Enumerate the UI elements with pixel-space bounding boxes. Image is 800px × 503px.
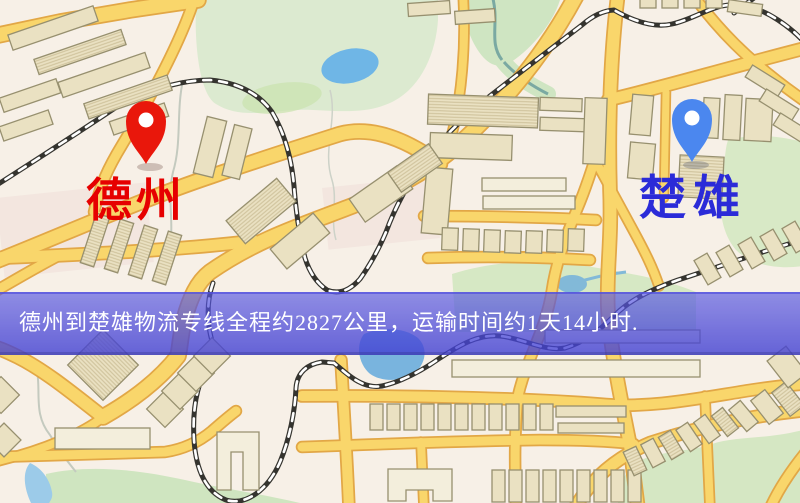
map-building <box>505 231 522 254</box>
map-building <box>408 1 451 17</box>
map-building <box>540 117 586 132</box>
map-building <box>489 404 502 430</box>
map-building <box>523 404 536 430</box>
map-building <box>463 229 480 252</box>
map-building <box>547 230 564 253</box>
map-building <box>662 0 678 8</box>
map-building <box>706 0 722 8</box>
map-canvas <box>0 0 800 503</box>
map-building <box>640 0 656 8</box>
map-building <box>421 404 434 430</box>
map-building <box>483 196 575 209</box>
map-building <box>577 470 590 502</box>
map-building <box>526 470 539 502</box>
map-building <box>684 0 700 8</box>
map-building <box>472 404 485 430</box>
map-building <box>723 95 742 141</box>
map-building <box>568 229 585 252</box>
banner-text: 德州到楚雄物流专线全程约2827公里，运输时间约1天14小时. <box>0 294 800 351</box>
map-building <box>455 404 468 430</box>
map-building <box>540 404 553 430</box>
map-building <box>558 423 624 433</box>
map-building <box>484 230 501 253</box>
map-building <box>526 231 543 254</box>
map-building <box>455 9 496 25</box>
map-building <box>438 404 451 430</box>
map-building <box>583 98 607 165</box>
map-building <box>370 404 383 430</box>
map-building <box>452 360 700 377</box>
map-building <box>556 406 626 417</box>
map-building <box>506 404 519 430</box>
map-building <box>482 178 566 191</box>
map-building <box>428 94 539 128</box>
map-image: 德州 楚雄 德州到楚雄物流专线全程约2827公里，运输时间约1天14小时. <box>0 0 800 503</box>
map-building <box>509 470 522 502</box>
map-building <box>442 228 459 251</box>
map-building <box>404 404 417 430</box>
map-building <box>594 470 607 502</box>
map-building <box>55 428 150 449</box>
map-building <box>627 142 655 180</box>
map-building <box>430 133 513 161</box>
map-building <box>543 470 556 502</box>
map-building <box>629 94 653 136</box>
map-building <box>560 470 573 502</box>
map-building <box>421 167 453 235</box>
map-building <box>387 404 400 430</box>
map-building <box>492 470 505 502</box>
map-building <box>611 470 624 502</box>
info-banner: 德州到楚雄物流专线全程约2827公里，运输时间约1天14小时. <box>0 292 800 355</box>
map-building <box>540 97 582 111</box>
